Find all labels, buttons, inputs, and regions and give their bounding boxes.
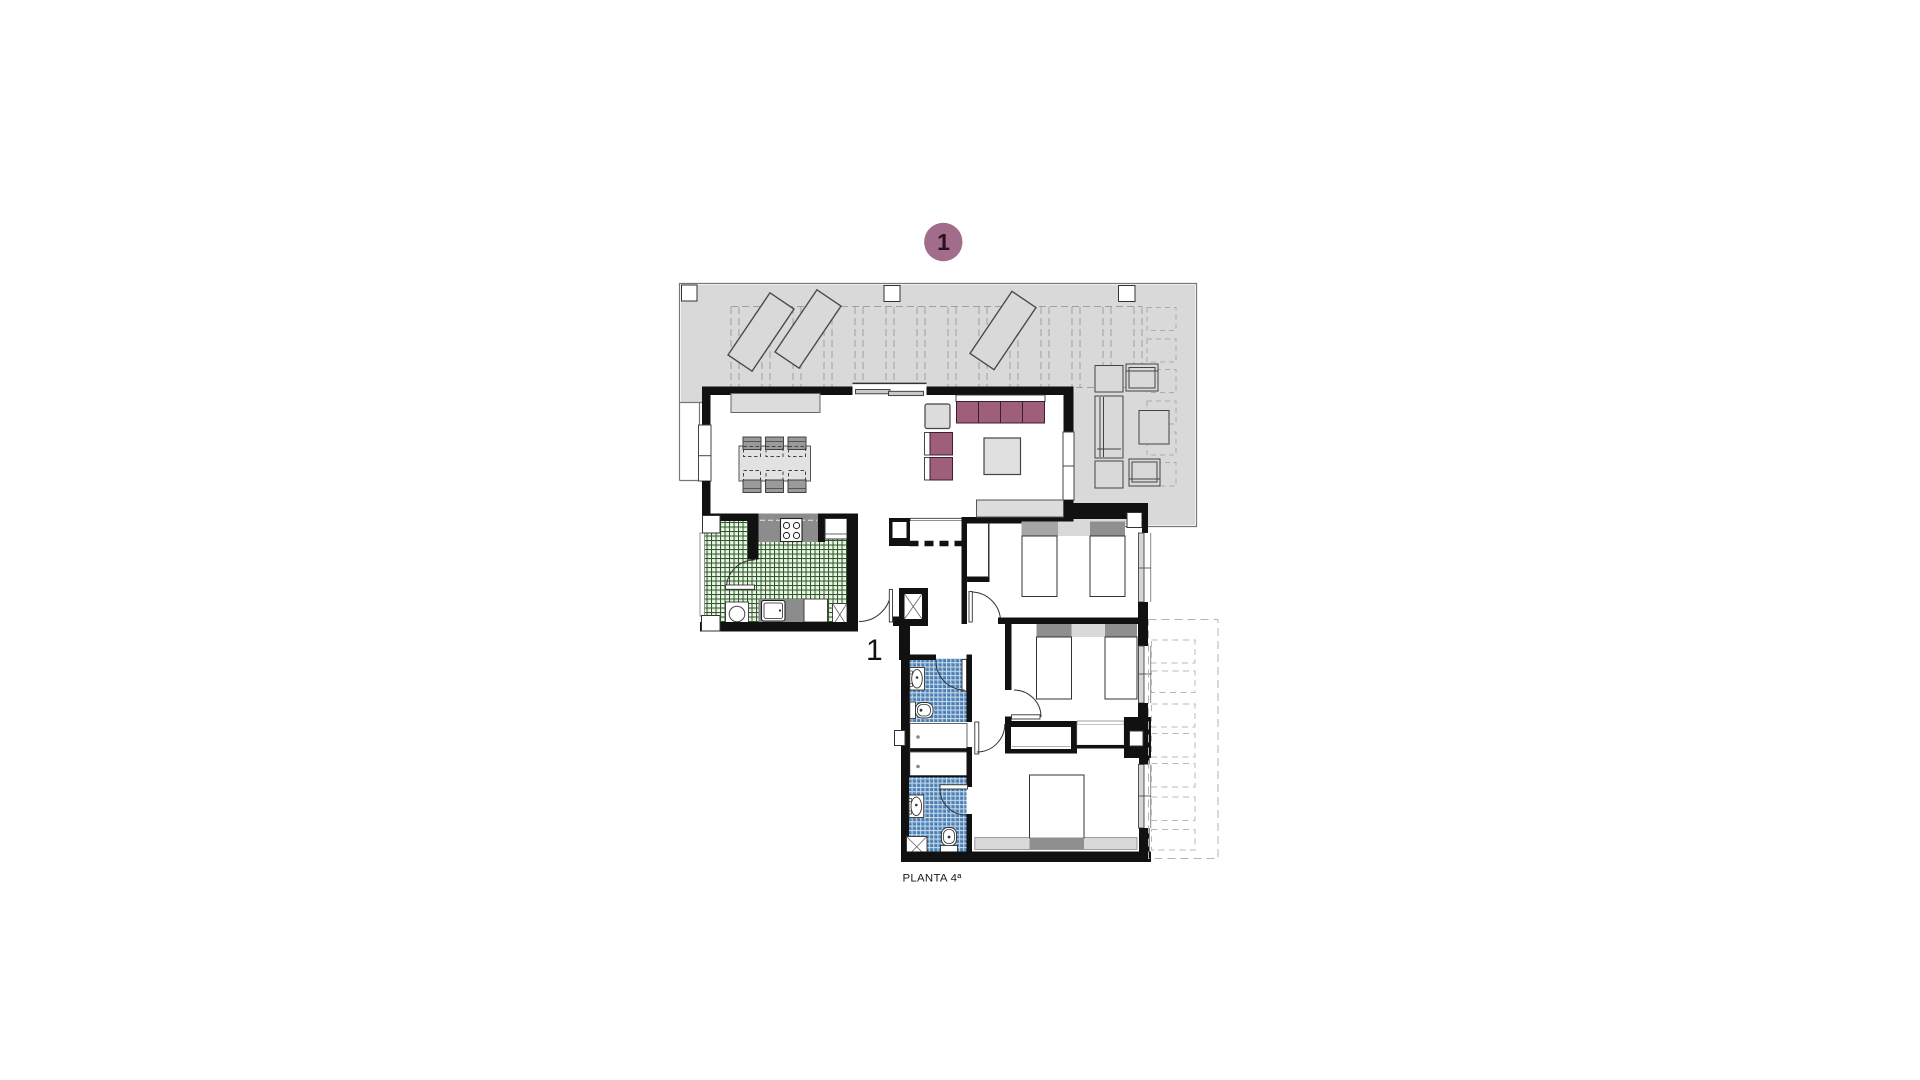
svg-text:1: 1: [866, 634, 883, 667]
svg-text:1: 1: [937, 229, 950, 255]
svg-text:PLANTA 4ª: PLANTA 4ª: [903, 873, 963, 885]
